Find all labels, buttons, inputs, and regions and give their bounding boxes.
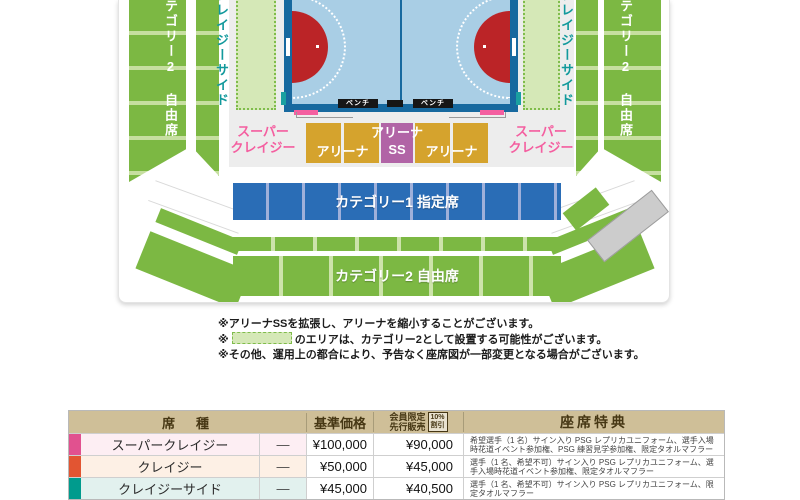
penalty-mark-right: [483, 45, 486, 48]
row3-seat-name: クレイジーサイド: [81, 478, 259, 499]
row2-base-price: ¥50,000: [306, 456, 373, 477]
free-throw-arc-right: [456, 0, 510, 99]
goal-right: [510, 36, 518, 58]
super-crazy-left-label: スーパー クレイジー: [215, 124, 311, 156]
optional-area-left: [236, 0, 276, 110]
free-throw-arc-left: [292, 0, 346, 99]
row2-seat-name: クレイジー: [81, 456, 259, 477]
category2-right-label: カテゴリー2 自由席: [618, 0, 633, 174]
category1-band: カテゴリー1 指定席: [233, 183, 561, 220]
category1-label: カテゴリー1 指定席: [335, 192, 459, 212]
note-line-2-suffix: のエリアは、カテゴリー2として設置する可能性がございます。: [295, 334, 608, 346]
penalty-mark-left: [316, 45, 319, 48]
super-crazy-left-line1: スーパー: [215, 124, 311, 140]
category2-band: カテゴリー2 自由席: [233, 256, 561, 296]
category2-left-label: カテゴリー2 自由席: [163, 0, 178, 174]
table-row-crazy: クレイジー — ¥50,000 ¥45,000 選手（1 名、希望不可）サイン入…: [69, 455, 724, 477]
court-center-line: [400, 0, 402, 104]
note-line-1: ※アリーナSSを拡張し、アリーナを縮小することがございます。: [218, 317, 648, 332]
row3-dash: —: [259, 478, 306, 499]
price-table-header: 席 種 基準価格 会員限定 先行販売 10% 割引 座席特典: [69, 411, 724, 433]
header-benefits: 座席特典: [463, 412, 724, 432]
note-line-2: ※のエリアは、カテゴリー2として設置する可能性がございます。: [218, 332, 648, 348]
optional-area-swatch: [232, 332, 292, 344]
bench-right-label: ベンチ: [413, 99, 453, 108]
row3-color-swatch: [69, 478, 81, 499]
row3-benefit: 選手（1 名、希望不可）サイン入り PSG レプリカユニフォーム、限定タオルマフ…: [463, 478, 724, 499]
handball-court: [284, 0, 518, 112]
header-member-line1: 会員限定: [389, 412, 425, 422]
price-table: 席 種 基準価格 会員限定 先行販売 10% 割引 座席特典 スーパークレイジー…: [68, 410, 725, 500]
notes: ※アリーナSSを拡張し、アリーナを縮小することがございます。 ※のエリアは、カテ…: [218, 317, 648, 363]
discount-line1: 10%: [431, 414, 445, 422]
marker-line-right: [449, 112, 506, 118]
row2-dash: —: [259, 456, 306, 477]
table-row-super-crazy: スーパークレイジー — ¥100,000 ¥90,000 希望選手（1 名）サイ…: [69, 433, 724, 455]
row2-color-swatch: [69, 456, 81, 477]
category2-label: カテゴリー2 自由席: [335, 266, 459, 286]
arena-ss-line1: アリーナ: [369, 124, 425, 141]
header-base-price: 基準価格: [306, 413, 373, 432]
row2-benefit: 選手（1 名、希望不可）サイン入り PSG レプリカユニフォーム、選手入場時花道…: [463, 456, 724, 477]
header-seat-type: 席 種: [69, 413, 306, 432]
row1-color-swatch: [69, 434, 81, 455]
row1-seat-name: スーパークレイジー: [81, 434, 259, 455]
goal-left: [284, 36, 292, 58]
officials-table: [387, 100, 403, 107]
row3-member-price: ¥40,500: [373, 478, 463, 499]
row2-member-price: ¥45,000: [373, 456, 463, 477]
note-line-3: ※その他、運用上の都合により、予告なく座席図が一部変更となる場合がございます。: [218, 348, 648, 363]
optional-area-right: [523, 0, 560, 110]
row1-benefit: 希望選手（1 名）サイン入り PSG レプリカユニフォーム、選手入場時花道イベン…: [463, 434, 724, 455]
super-crazy-right-line1: スーパー: [493, 124, 589, 140]
corner-tick-right: [516, 92, 521, 105]
table-row-crazy-side: クレイジーサイド — ¥45,000 ¥40,500 選手（1 名、希望不可）サ…: [69, 477, 724, 499]
seat-map-card: カテゴリー2 自由席 クレイジーサイド カテゴリー2 自由席 クレイジーサイド …: [118, 0, 670, 303]
super-crazy-left-line2: クレイジー: [215, 140, 311, 156]
header-member-line2: 先行販売: [389, 422, 425, 432]
discount-line2: 割引: [431, 422, 445, 430]
super-crazy-right-line2: クレイジー: [493, 140, 589, 156]
arena-right-label: アリーナ: [415, 141, 488, 160]
super-crazy-right-label: スーパー クレイジー: [493, 124, 589, 156]
note-line-2-prefix: ※: [218, 334, 229, 346]
row3-base-price: ¥45,000: [306, 478, 373, 499]
header-member-presale: 会員限定 先行販売 10% 割引: [373, 412, 463, 432]
bench-left-label: ベンチ: [338, 99, 378, 108]
row1-member-price: ¥90,000: [373, 434, 463, 455]
discount-badge: 10% 割引: [428, 412, 448, 432]
row1-base-price: ¥100,000: [306, 434, 373, 455]
corner-tick-left: [281, 92, 286, 105]
category2-upper-strip: [233, 237, 561, 251]
marker-line-left: [296, 112, 353, 118]
header-member-text: 会員限定 先行販売: [389, 412, 425, 432]
row1-dash: —: [259, 434, 306, 455]
